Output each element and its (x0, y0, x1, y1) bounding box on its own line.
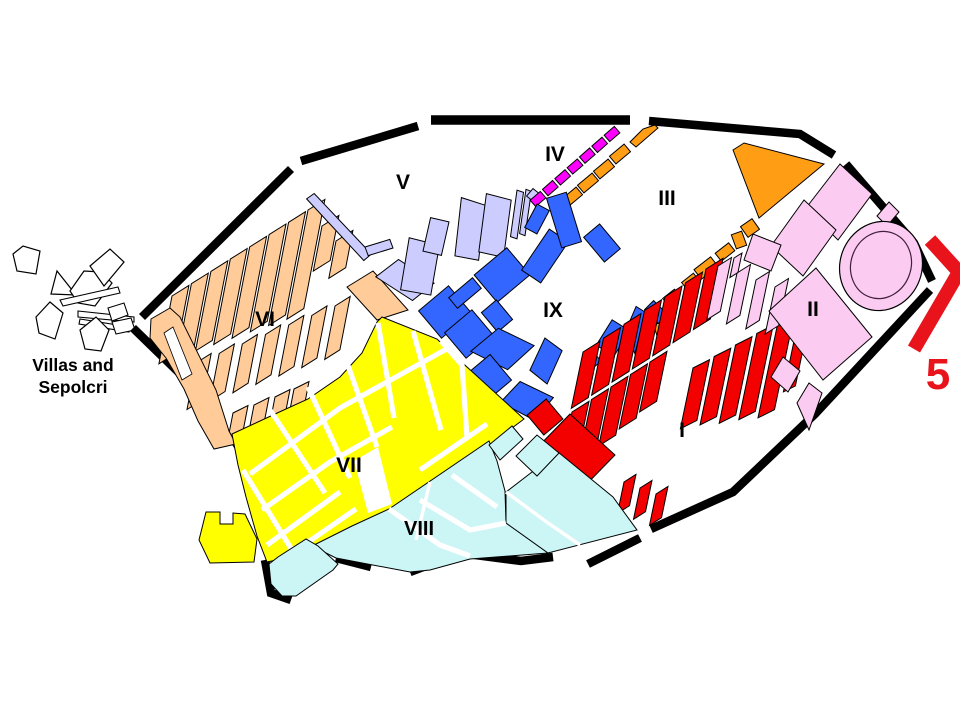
svg-text:Villas and: Villas and (32, 355, 113, 375)
svg-text:V: V (396, 171, 410, 194)
svg-text:IX: IX (543, 299, 563, 322)
svg-text:Sepolcri: Sepolcri (38, 377, 107, 397)
svg-text:VII: VII (336, 454, 362, 477)
svg-text:5: 5 (926, 350, 950, 399)
svg-text:VIII: VIII (404, 518, 434, 540)
svg-text:VI: VI (255, 308, 275, 331)
svg-text:I: I (679, 419, 685, 442)
svg-text:II: II (807, 298, 819, 321)
svg-text:IV: IV (545, 143, 565, 166)
svg-text:III: III (658, 187, 676, 210)
